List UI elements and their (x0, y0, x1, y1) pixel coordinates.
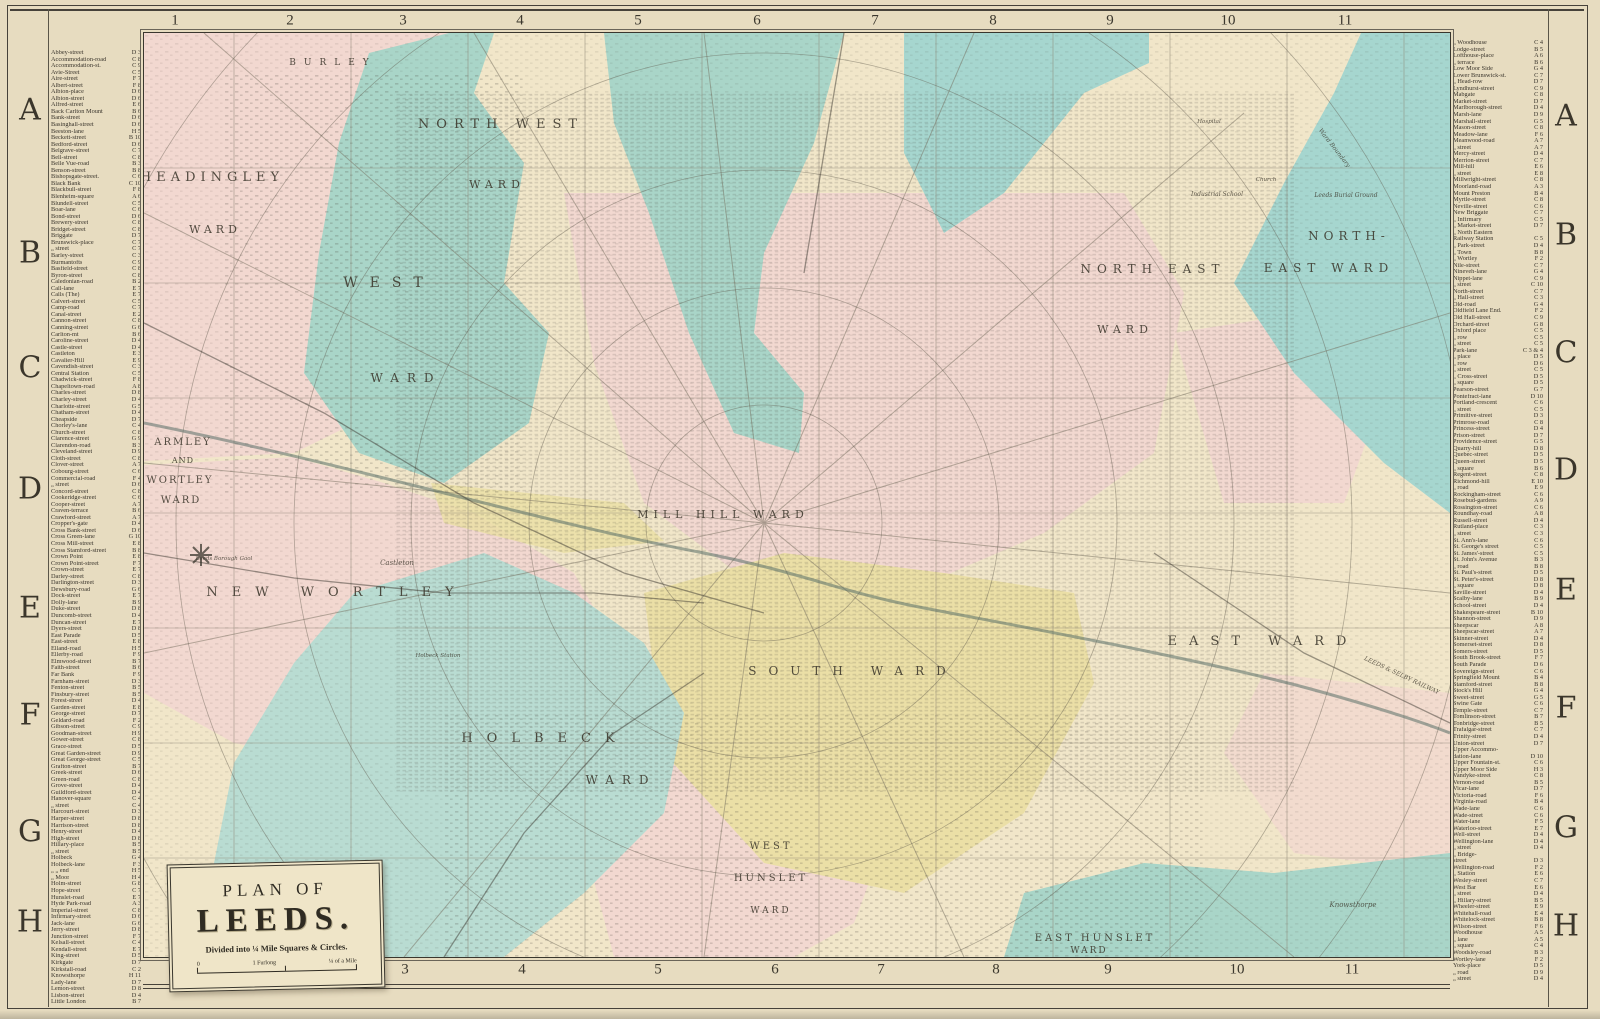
ward-label: SOUTH WARD (748, 664, 958, 678)
grid-column-number-top: 1 (171, 13, 179, 30)
grid-column-number-bottom: 10 (1230, 962, 1245, 979)
left-index-rule (48, 9, 49, 1007)
grid-column-number-top: 5 (634, 13, 642, 30)
ward-label: WARD (1097, 323, 1153, 336)
ward-label: WEST (343, 275, 435, 291)
grid-row-letter-left: F (20, 698, 41, 733)
ward-label: WARD (585, 773, 656, 787)
ward-label: ARMLEY (153, 437, 212, 448)
title-cartouche: PLAN OF LEEDS. Divided into ¼ Mile Squar… (167, 860, 386, 993)
ward-label: WARD (750, 906, 791, 916)
grid-row-letter-right: A (1555, 99, 1577, 134)
grid-column-number-top: 4 (516, 13, 524, 30)
right-index-rule (1548, 9, 1549, 1007)
grid-row-letter-left: B (19, 236, 41, 271)
ward-label: EAST WARD (1264, 261, 1395, 275)
title-line1: PLAN OF (222, 879, 328, 901)
grid-row-letter-right: F (1556, 691, 1577, 726)
ward-label: EAST HUNSLET (1035, 933, 1156, 944)
grid-column-number-bottom: 9 (1104, 962, 1112, 979)
grid-column-number-top: 2 (286, 13, 294, 30)
ward-label: WARD (1070, 946, 1107, 956)
grid-row-letter-left: G (18, 815, 42, 850)
ward-label: AND (171, 456, 194, 465)
ward-label: WEST (749, 841, 792, 852)
grid-row-letter-left: C (19, 351, 42, 386)
index-entry: „ streetD 4 (1453, 976, 1543, 983)
ward-label: NORTH WEST (418, 117, 584, 132)
grid-column-number-bottom: 6 (771, 962, 779, 979)
ward-label: NEW WORTLEY (206, 585, 467, 600)
grid-column-number-bottom: 8 (992, 962, 1000, 979)
place-label: Castleton (380, 559, 414, 567)
ward-label: WORTLEY (146, 475, 213, 486)
grid-row-letter-left: H (17, 905, 43, 940)
grid-column-number-top: 11 (1338, 13, 1352, 30)
place-label: Leeds Borough Gaol (195, 556, 253, 562)
grid-row-letter-left: E (19, 591, 41, 626)
city-map: BURLEYHEADINGLEYWARDNORTH WESTWARDNORTH … (143, 32, 1451, 958)
ward-label: MILL HILL WARD (637, 508, 809, 521)
grid-column-number-top: 6 (753, 13, 761, 30)
grid-column-number-top: 10 (1221, 13, 1236, 30)
city-map-canvas: BURLEYHEADINGLEYWARDNORTH WESTWARDNORTH … (144, 33, 1450, 957)
ward-label: WARD (189, 223, 241, 236)
grid-row-letter-left: A (19, 93, 41, 128)
grid-row-letter-left: D (18, 472, 42, 507)
title-line2: LEEDS. (196, 900, 355, 941)
grid-column-number-bottom: 3 (401, 962, 409, 979)
grid-row-letter-right: D (1554, 453, 1578, 488)
index-entry: Little LondonB 7 (51, 999, 141, 1006)
map-regions: BURLEYHEADINGLEYWARDNORTH WESTWARDNORTH … (144, 33, 1450, 957)
grid-column-number-bottom: 5 (654, 962, 662, 979)
grid-row-letter-right: B (1555, 218, 1577, 253)
grid-column-number-top: 8 (989, 13, 997, 30)
scale-bar: 0 1 Furlong ¼ of a Mile (197, 958, 357, 976)
ward-label: WARD (370, 371, 441, 385)
top-rule (10, 9, 1584, 11)
place-label: Hospital (1196, 119, 1221, 125)
place-label: Holbeck Station (415, 653, 461, 659)
place-label: Church (1256, 177, 1277, 183)
ward-label: WARD (469, 178, 525, 191)
grid-column-number-bottom: 11 (1345, 962, 1359, 979)
map-sheet: Abbey-streetD 3Accommodation-roadC 8Acco… (0, 0, 1600, 1019)
ward-label: WARD (161, 495, 202, 506)
title-subtitle: Divided into ¼ Mile Squares & Circles. (205, 941, 347, 954)
ward-label: HOLBECK (461, 731, 628, 746)
grid-row-letter-right: H (1553, 909, 1579, 944)
ward-label: HEADINGLEY (144, 170, 284, 185)
place-label: Leeds Burial Ground (1313, 192, 1377, 199)
place-label: Industrial School (1190, 191, 1243, 198)
place-label: Knowsthorpe (1328, 901, 1376, 909)
grid-row-letter-right: G (1554, 811, 1578, 846)
grid-column-number-top: 9 (1106, 13, 1114, 30)
grid-row-letter-right: E (1555, 573, 1577, 608)
street-index-left: Abbey-streetD 3Accommodation-roadC 8Acco… (51, 50, 141, 1006)
borough-gaol-mark (190, 544, 212, 566)
ward-label: NORTH- (1308, 229, 1390, 243)
ward-label: BURLEY (289, 58, 376, 68)
ward-label: EAST WARD (1168, 634, 1359, 649)
ward-label: NORTH EAST (1080, 262, 1225, 276)
grid-column-number-top: 3 (399, 13, 407, 30)
grid-column-number-bottom: 4 (518, 962, 526, 979)
grid-column-number-top: 7 (871, 13, 879, 30)
ward-label: HUNSLET (734, 873, 808, 884)
street-index-right: „ WoodhouseC 4Lodge-streetB 5Lofthouse-p… (1453, 40, 1543, 983)
sheet-edge-shadow (0, 1010, 1600, 1019)
grid-column-number-bottom: 7 (877, 962, 885, 979)
grid-row-letter-right: C (1555, 336, 1578, 371)
